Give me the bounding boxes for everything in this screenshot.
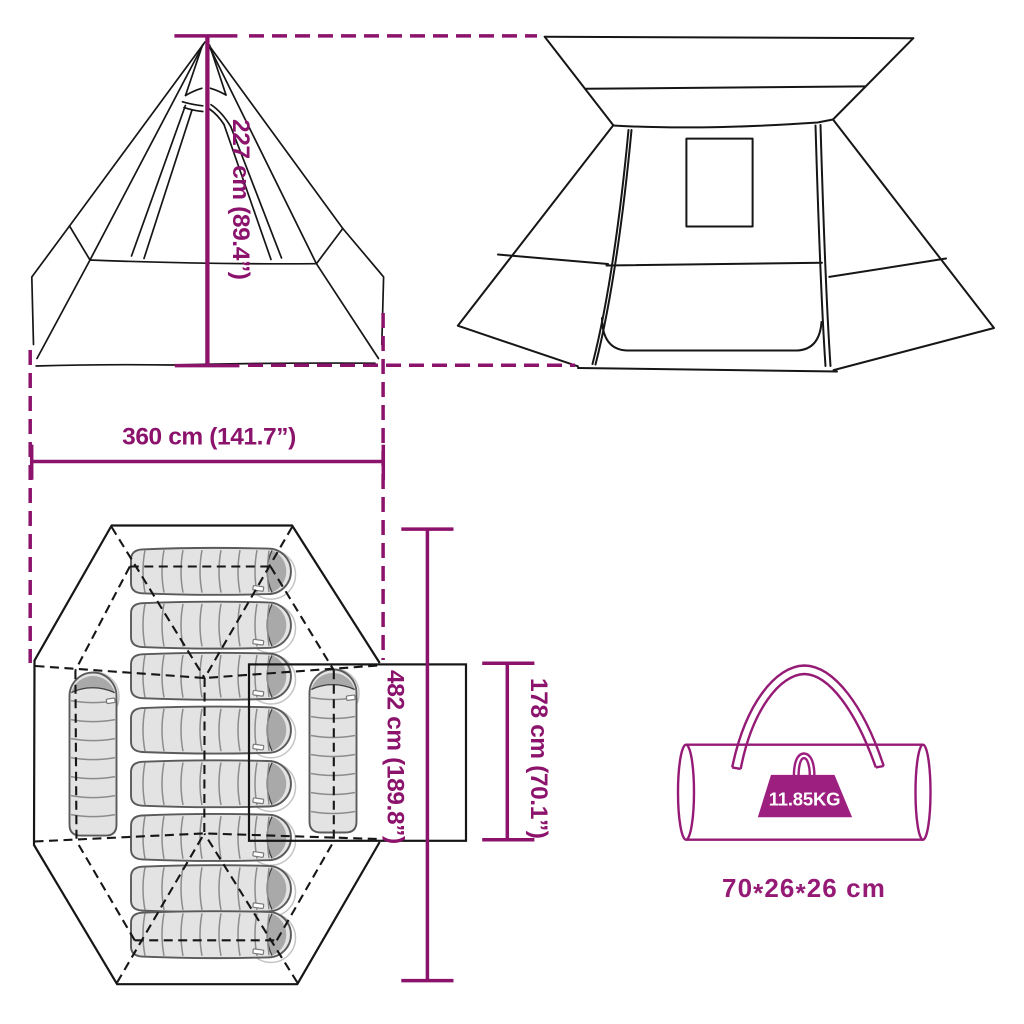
svg-text:11.85KG: 11.85KG	[769, 789, 841, 810]
svg-text:360 cm (141.7”): 360 cm (141.7”)	[122, 424, 296, 451]
svg-text:227 cm (89.4”): 227 cm (89.4”)	[227, 119, 254, 280]
svg-text:70*26*26 cm: 70*26*26 cm	[722, 873, 886, 908]
svg-text:178 cm (70.1”): 178 cm (70.1”)	[525, 678, 552, 839]
svg-text:482 cm (189.8”): 482 cm (189.8”)	[382, 670, 409, 844]
